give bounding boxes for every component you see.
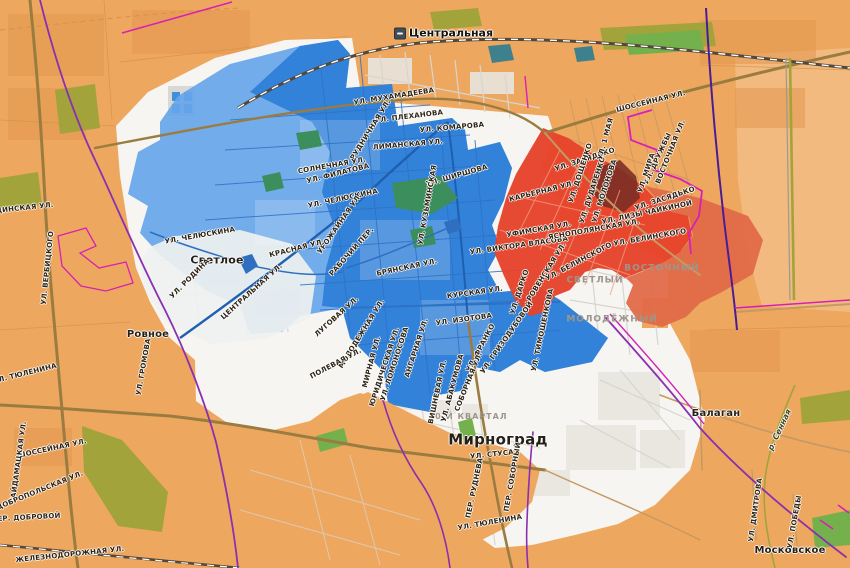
street-label: Центральная ул. bbox=[220, 263, 284, 321]
street-label: Курская ул. bbox=[447, 286, 504, 301]
street-label: Шоссейная ул. bbox=[17, 438, 88, 460]
place-label[interactable]: Мирноград bbox=[448, 433, 547, 448]
street-label: ул. Победы bbox=[787, 495, 803, 549]
street-label: ул. Тимошенкова bbox=[531, 288, 555, 372]
street-label: Луговая ул. bbox=[314, 296, 361, 339]
street-label: Родинская ул. bbox=[0, 202, 54, 216]
street-label: Карьерная ул. bbox=[509, 180, 576, 203]
water-label: р. Сенная bbox=[767, 408, 793, 452]
street-label: ул. Изотова bbox=[435, 313, 492, 328]
street-label: Шоссейная ул. bbox=[616, 90, 687, 114]
street-label: ул. Комарова bbox=[420, 122, 485, 135]
street-label: Полевая ул. bbox=[309, 348, 363, 381]
street-label: ул. Мухамадеева bbox=[353, 87, 435, 107]
street-label: ул. Челюскина bbox=[307, 188, 378, 210]
street-label: ул. Челюскина bbox=[164, 226, 236, 245]
street-label: Лиманская ул. bbox=[373, 138, 444, 151]
street-label: ул. Вербицкого bbox=[41, 231, 56, 305]
street-label: ул. Дмитрова bbox=[748, 478, 764, 543]
place-label[interactable]: Балаган bbox=[692, 409, 741, 419]
street-label: ул. Кузьминская bbox=[418, 164, 439, 245]
street-label: Брянская ул. bbox=[376, 258, 438, 278]
street-label: ул. Тюленина bbox=[0, 363, 58, 386]
railway-station[interactable]: Центральная bbox=[394, 27, 493, 40]
labels-layer: СветлоеРовноеМирноградБалаганМосковскоеС… bbox=[0, 0, 850, 568]
street-label: Железнодорожная ул. bbox=[15, 546, 124, 564]
street-label: Рудничная ул. bbox=[350, 99, 393, 162]
street-label: ул. Громова bbox=[136, 338, 153, 396]
train-station-icon bbox=[394, 27, 406, 39]
street-label: ул. Белинского bbox=[613, 228, 687, 248]
station-label: Центральная bbox=[409, 27, 493, 40]
street-label: пер. Руднева bbox=[465, 457, 485, 519]
district-label: Восточный bbox=[624, 265, 700, 274]
district-label: Молодёжный bbox=[566, 316, 657, 325]
map-canvas[interactable]: СветлоеРовноеМирноградБалаганМосковскоеС… bbox=[0, 0, 850, 568]
district-label: Светлый bbox=[566, 277, 623, 286]
street-label: пер. Добровой bbox=[0, 513, 61, 524]
